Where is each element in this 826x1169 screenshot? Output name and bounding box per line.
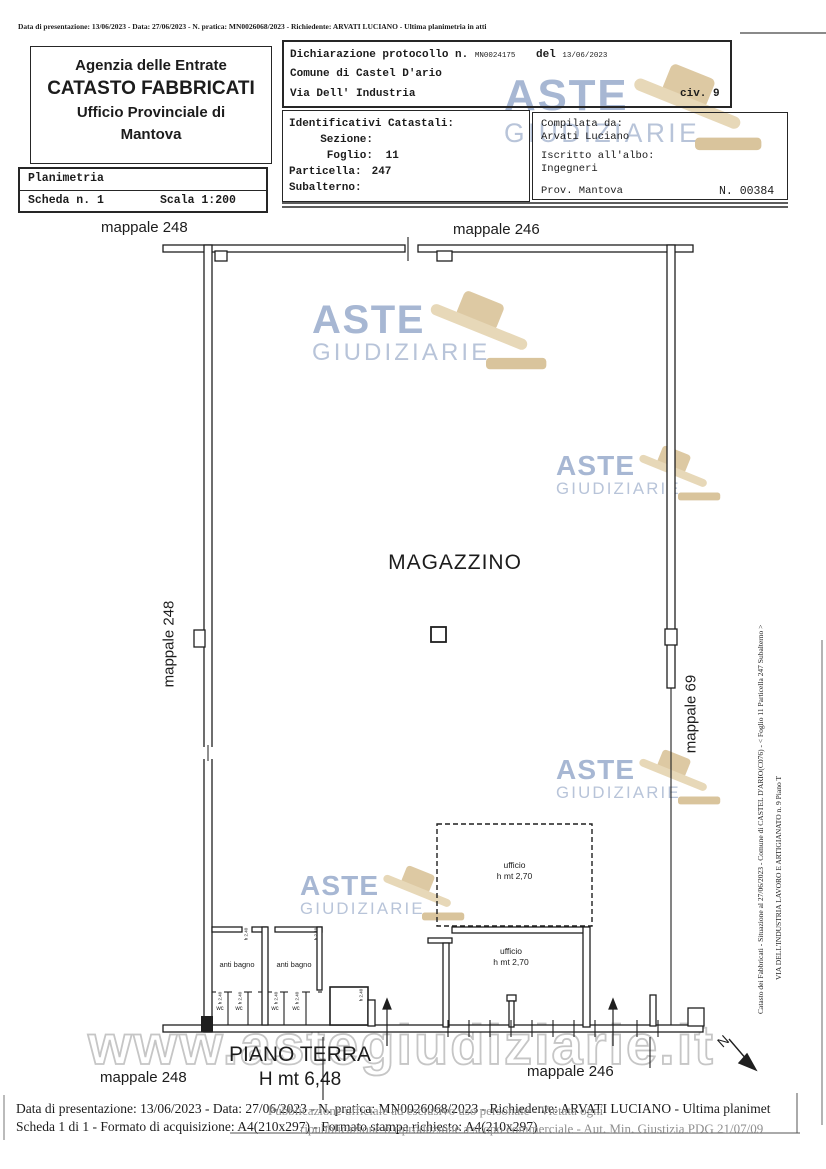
piano-terra-label: PIANO TERRA: [210, 1043, 390, 1067]
protocol-number: MN0024175: [475, 52, 516, 60]
agency-line4: Mantova: [31, 124, 271, 146]
height-note: h 2.40: [218, 992, 223, 1005]
office-upper-name: ufficio: [437, 860, 592, 871]
albo-number: N. 00384: [719, 185, 774, 198]
compiled-box: Compilata da: Arvati Luciano Iscritto al…: [532, 112, 788, 200]
magazzino-label: MAGAZZINO: [340, 551, 570, 575]
height-note: h 2.40: [314, 928, 319, 941]
protocol-date: 13/06/2023: [562, 52, 607, 60]
north-arrow-icon: [729, 1039, 756, 1070]
compilata-label: Compilata da:: [541, 118, 779, 131]
wc-label: wc: [267, 1006, 283, 1012]
compilata-value: Arvati Luciano: [541, 131, 779, 144]
foglio-value: 11: [386, 150, 399, 162]
office-upper-height: h mt 2,70: [437, 871, 592, 882]
agency-line2: CATASTO FABBRICATI: [31, 76, 271, 102]
foglio-label: Foglio:: [289, 148, 373, 164]
sheet-number: Scheda n. 1: [28, 194, 104, 207]
agency-line3: Ufficio Provinciale di: [31, 102, 271, 124]
prov-label: Prov. Mantova: [541, 185, 623, 197]
disclaimer-line1: Pubblicazione ufficiale ad esclusivo uso…: [268, 1103, 603, 1119]
mappale-left-label: mappale 248: [161, 601, 178, 688]
top-note: Data di presentazione: 13/06/2023 - Data…: [18, 22, 486, 31]
agency-line1: Agenzia delle Entrate: [31, 55, 271, 76]
office-lower-height: h mt 2,70: [432, 957, 590, 968]
office-lower-name: ufficio: [432, 946, 590, 957]
sheet-box: Planimetria Scheda n. 1 Scala 1:200: [18, 167, 268, 213]
disclaimer-line2: ripubblicazione o riproduzione a scopo c…: [300, 1121, 763, 1137]
height-note: h 2.40: [238, 992, 243, 1005]
office-upper-label: ufficio h mt 2,70: [437, 860, 592, 882]
height-note: h 2.40: [295, 992, 300, 1005]
identifiers-title: Identificativi Catastali:: [289, 116, 523, 132]
albo-value: Ingegneri: [541, 163, 779, 176]
document-page: ASTE GIUDIZIARIE ASTE GIUDIZIARIE ASTE: [0, 0, 826, 1169]
declaration-box: Dichiarazione protocollo n. MN0024175 de…: [282, 40, 732, 108]
wc-label: wc: [212, 1006, 228, 1012]
protocol-label: Dichiarazione protocollo n.: [290, 49, 468, 61]
identifiers-box: Identificativi Catastali: Sezione: Fogli…: [282, 110, 530, 202]
particella-value: 247: [372, 166, 392, 178]
mappale-bottom-right-label: mappale 246: [527, 1063, 614, 1080]
agency-box: Agenzia delle Entrate CATASTO FABBRICATI…: [30, 46, 272, 164]
anti-bagno-2-label: anti bagno: [268, 960, 320, 969]
sezione-label: Sezione:: [289, 132, 373, 148]
particella-label: Particella:: [289, 164, 359, 180]
mappale-top-right-label: mappale 246: [453, 221, 540, 238]
civ-number: civ. 9: [680, 84, 720, 104]
albo-label: Iscritto all'albo:: [541, 150, 779, 163]
anti-bagno-1-label: anti bagno: [212, 960, 262, 969]
piano-terra-height: H mt 6,48: [210, 1069, 390, 1091]
height-note: h 2.40: [359, 989, 364, 1002]
mappale-bottom-left-label: mappale 248: [100, 1069, 187, 1086]
wc-label: wc: [288, 1006, 304, 1012]
del-label: del: [536, 49, 556, 61]
side-note-line2: VIA DELL'INDUSTRIA LAVORO E ARTIGIANATO …: [774, 810, 783, 980]
sheet-title: Planimetria: [20, 169, 266, 191]
sheet-scale: Scala 1:200: [160, 194, 236, 207]
height-note: h 2.40: [274, 992, 279, 1005]
side-note-line1: Catasto dei Fabbricati - Situazione al 2…: [756, 642, 765, 1014]
height-note: h 2.40: [244, 928, 249, 941]
mappale-right-label: mappale 69: [683, 675, 700, 753]
subalterno-label: Subalterno:: [289, 180, 361, 196]
comune-line: Comune di Castel D'ario: [290, 65, 724, 84]
office-lower-label: ufficio h mt 2,70: [432, 946, 590, 968]
street-line: Via Dell' Industria: [290, 88, 415, 100]
mappale-top-left-label: mappale 248: [101, 219, 188, 236]
wc-label: wc: [231, 1006, 247, 1012]
